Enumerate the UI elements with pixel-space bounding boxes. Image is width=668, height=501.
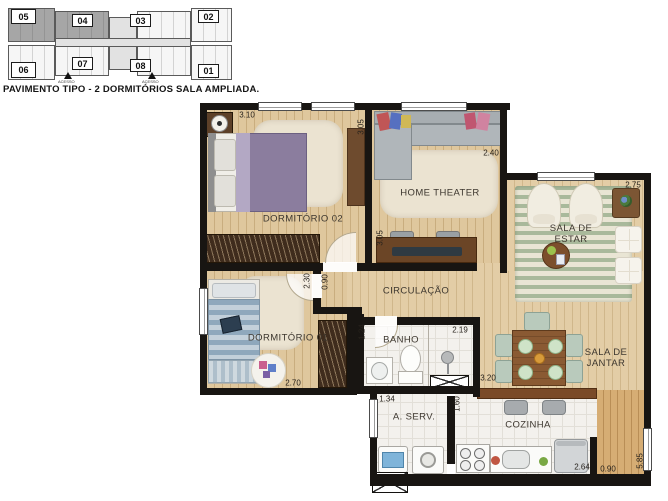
label-home-theater: HOME THEATER — [385, 188, 495, 199]
dim-cozinha-width: 2.64 — [574, 463, 590, 472]
dim-ht-width: 2.40 — [483, 149, 499, 158]
tv-screen — [392, 247, 462, 256]
wall-dorm1-bottom — [200, 388, 357, 395]
washing-machine-door — [420, 452, 436, 468]
wall-dorm2-ht — [365, 103, 372, 271]
stool — [504, 400, 528, 415]
window-dorm2-a — [258, 102, 302, 111]
floor-plan-page: 05 04 03 02 06 07 08 01 ACESSO ACESSO PA… — [0, 0, 668, 501]
kitchen-sink — [502, 450, 530, 469]
wall-bottom — [370, 474, 651, 486]
keyplan-unit-02: 02 — [198, 10, 219, 23]
table-lamp-center — [217, 121, 222, 126]
wardrobe-dorm2 — [204, 234, 320, 263]
window-dorm1 — [199, 288, 208, 335]
label-cozinha: COZINHA — [488, 420, 568, 431]
toilet-bowl — [400, 345, 421, 373]
dim-banho-width: 2.19 — [452, 326, 468, 335]
keyplan-unit-03: 03 — [130, 14, 151, 27]
dim-ht-depth-bottom: 3.05 — [376, 230, 385, 246]
dresser-dorm2 — [347, 128, 365, 206]
dim-estar-width: 2.75 — [625, 181, 641, 190]
sofa-chaise — [374, 124, 412, 180]
bed-single-pillow — [212, 283, 256, 298]
wardrobe-dorm1 — [318, 320, 347, 388]
toilet-tank — [398, 371, 423, 384]
keyplan-unit-08: 08 — [130, 59, 151, 72]
wall-deck-stub — [590, 437, 597, 474]
dim-dorm1-depth: 2.30 — [303, 273, 312, 289]
label-dormitorio-02: DORMITÓRIO 02 — [238, 214, 368, 225]
label-circulacao: CIRCULAÇÃO — [361, 286, 471, 297]
bath-sink-bowl — [371, 362, 388, 380]
kitchen-counter — [477, 388, 597, 399]
wall-ht-right — [500, 103, 507, 273]
dim-jantar-width: 3.20 — [480, 374, 496, 383]
pouf — [615, 226, 642, 253]
coffee-table-tray — [556, 254, 565, 265]
dim-aserv-width: 1.34 — [379, 395, 395, 404]
dining-chair — [495, 360, 513, 383]
cutting-board-green — [539, 457, 548, 466]
dim-dorm1-width: 2.70 — [285, 379, 301, 388]
cutting-board-red — [491, 456, 500, 465]
dim-deck-width: 0.90 — [600, 465, 616, 474]
plate — [518, 339, 533, 354]
dining-chair — [524, 312, 550, 331]
flower-vase — [620, 195, 632, 207]
keyplan-unit-06: 06 — [11, 62, 36, 78]
keyplan-corridor — [55, 38, 191, 47]
shower-stem — [447, 363, 449, 374]
dining-chair — [495, 334, 513, 357]
window-sala-estar — [537, 172, 595, 181]
laundry-tank-water — [382, 452, 404, 468]
label-dormitorio-01: DORMITÓRIO 01 — [245, 333, 331, 344]
plate — [548, 339, 563, 354]
centerpiece — [534, 353, 545, 364]
plate — [548, 365, 563, 380]
dim-aserv-depth: 1.60 — [453, 396, 462, 412]
wall-left — [200, 103, 207, 395]
window-dorm2-b — [311, 102, 355, 111]
plate — [518, 365, 533, 380]
door-gap-dorm2 — [323, 262, 357, 272]
bed-pillow — [214, 139, 236, 171]
bed-pillow — [214, 175, 236, 207]
window-home-theater — [401, 102, 467, 111]
dim-side-depth: 5.85 — [636, 453, 645, 469]
pouf — [615, 257, 642, 284]
plan-title: PAVIMENTO TIPO - 2 DORMITÓRIOS SALA AMPL… — [3, 84, 259, 95]
wall-banho-right — [473, 317, 480, 397]
dim-banho-depth: 1.24 — [358, 324, 367, 340]
armchair — [569, 183, 603, 228]
coffee-table-plant — [547, 246, 556, 255]
label-sala-de-jantar: SALA DE JANTAR — [577, 347, 635, 369]
dim-hall-width: 0.90 — [321, 274, 330, 290]
floor-circulacao-opening — [477, 263, 500, 271]
window-aserv — [369, 399, 378, 438]
keyplan-unit-07: 07 — [72, 57, 93, 70]
fridge-top — [556, 441, 586, 446]
round-rug-pattern — [263, 371, 270, 378]
access-arrow-left — [64, 72, 72, 79]
bed-duvet-fold — [236, 133, 250, 212]
dim-dorm2-width: 3.10 — [239, 111, 255, 120]
round-rug-pattern — [259, 361, 267, 369]
access-arrow-right — [148, 72, 156, 79]
label-banho: BANHO — [366, 335, 436, 346]
stool — [542, 400, 566, 415]
keyplan-unit-04: 04 — [72, 14, 93, 27]
stove — [456, 444, 490, 473]
dim-ht-depth-top: 3.05 — [357, 119, 366, 135]
keyplan-unit-01: 01 — [198, 64, 219, 78]
armchair — [527, 183, 561, 228]
label-area-servico: A. SERV. — [379, 412, 449, 423]
wall-dorm1-door-stub — [313, 298, 321, 314]
keyplan-unit-05: 05 — [11, 9, 36, 24]
label-sala-de-estar: SALA DE ESTAR — [540, 223, 602, 245]
sofa-pillow — [401, 115, 411, 128]
keyplan: 05 04 03 02 06 07 08 01 ACESSO ACESSO — [0, 0, 240, 84]
